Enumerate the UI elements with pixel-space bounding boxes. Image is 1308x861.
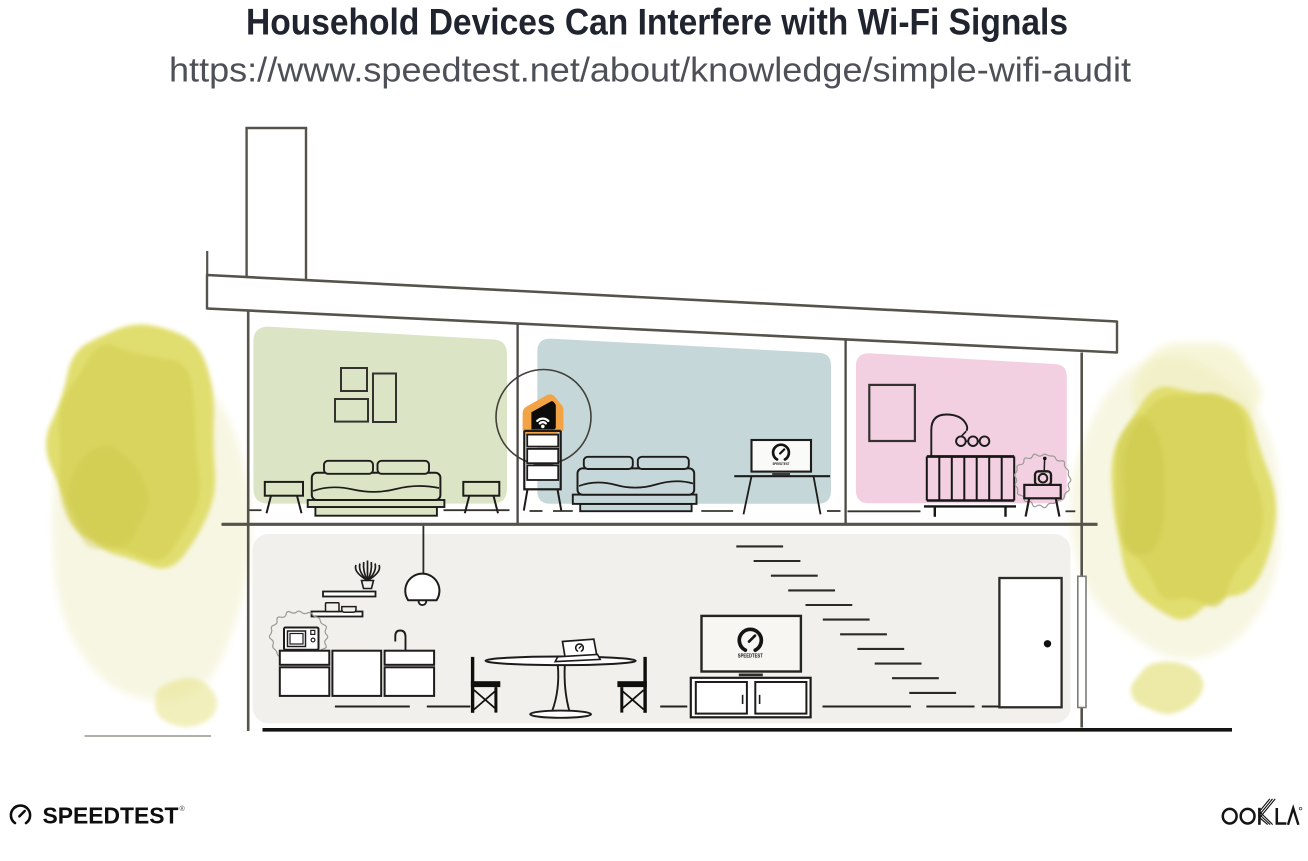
svg-text:https://www.speedtest.net/abou: https://www.speedtest.net/about/knowledg… [169,52,1132,90]
svg-text:®: ® [180,805,186,813]
svg-text:SPEEDTEST: SPEEDTEST [43,802,179,828]
svg-text:SPEEDTEST: SPEEDTEST [773,462,791,466]
svg-text:Household Devices Can Interfer: Household Devices Can Interfere with Wi-… [246,1,1068,43]
svg-text:SPEEDTEST: SPEEDTEST [738,654,764,660]
